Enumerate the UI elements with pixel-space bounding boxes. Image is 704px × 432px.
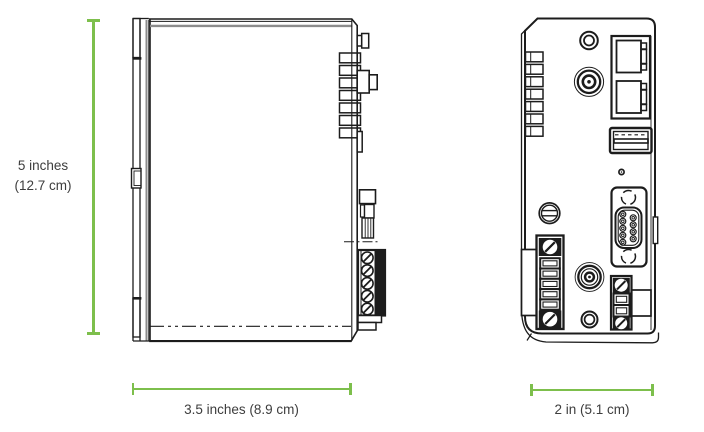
dimension-diagram: 5 inches (12.7 cm) 3.5 inches (8.9 cm) 2… <box>0 0 704 432</box>
width-dimension-label: 3.5 inches (8.9 cm) <box>132 400 352 420</box>
depth-dimension-label: 2 in (5.1 cm) <box>530 400 654 420</box>
terminal-block-side <box>358 250 385 330</box>
device-body-side <box>149 19 357 341</box>
led-indicator <box>619 169 624 174</box>
sma-connector-side <box>357 71 377 94</box>
vent-slats-front <box>526 52 544 136</box>
antenna-stub-side <box>357 34 369 49</box>
din-rail-mount-plate <box>132 19 151 342</box>
height-label-line2: (12.7 cm) <box>14 178 71 193</box>
height-label-line1: 5 inches <box>18 158 68 173</box>
usb-port <box>610 128 652 153</box>
sma-connector-top <box>574 67 603 96</box>
device-side-view <box>132 19 386 342</box>
ethernet-ports <box>612 36 651 119</box>
height-dimension-label: 5 inches (12.7 cm) <box>4 156 82 196</box>
device-front-view <box>522 19 659 343</box>
usb-port-side <box>357 132 362 153</box>
device-line-art <box>0 0 704 432</box>
terminal-block-5pos <box>522 236 564 330</box>
sma-connector-bottom <box>575 263 604 292</box>
